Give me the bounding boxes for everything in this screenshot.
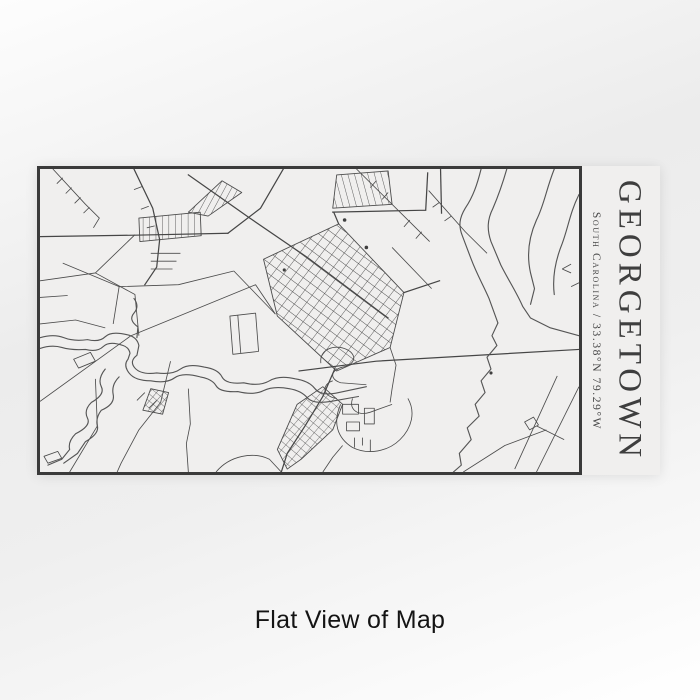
street-map-graphic (40, 169, 579, 472)
mockup-stage: South Carolina / 33.38°N 79.29°W Georget… (0, 0, 700, 700)
map-panel (37, 166, 582, 475)
view-caption: Flat View of Map (0, 606, 700, 635)
map-title: Georgetown (611, 179, 648, 461)
map-subtitle: South Carolina / 33.38°N 79.29°W (590, 211, 602, 429)
label-strip: South Carolina / 33.38°N 79.29°W Georget… (582, 166, 660, 475)
map-label-card: South Carolina / 33.38°N 79.29°W Georget… (37, 166, 660, 475)
